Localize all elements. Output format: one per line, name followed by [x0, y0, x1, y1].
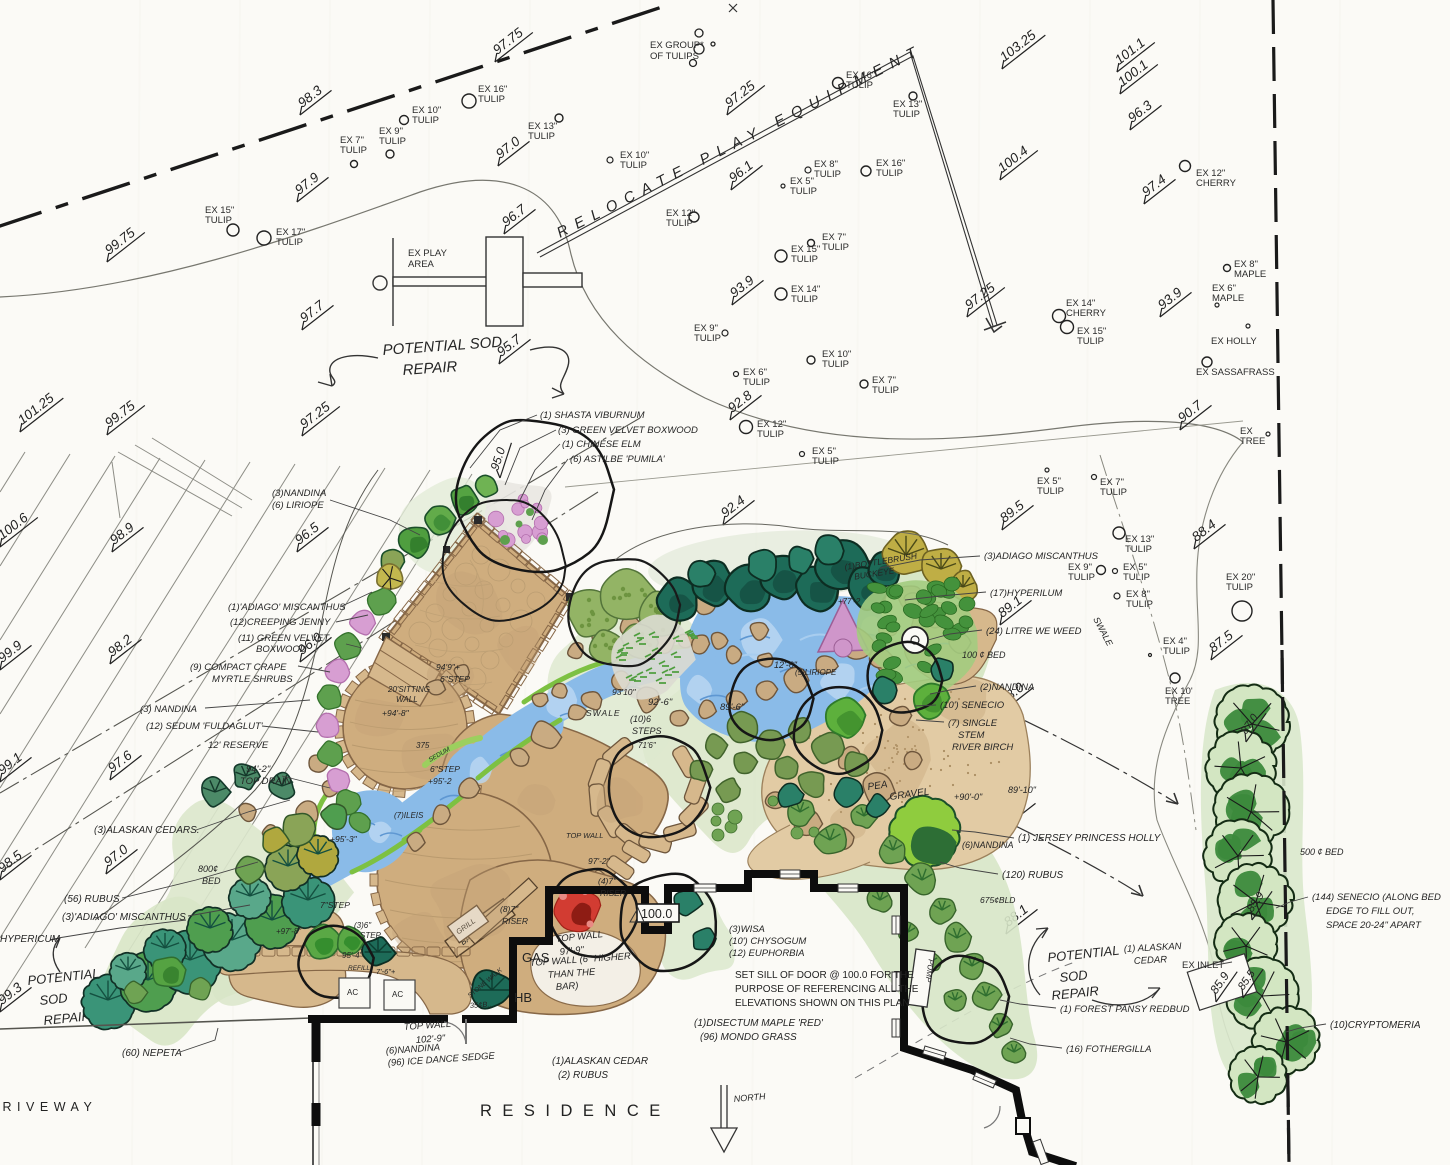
svg-text:(10)CRYPTOMERIA: (10)CRYPTOMERIA — [1330, 1020, 1421, 1031]
svg-text:TULIP: TULIP — [694, 333, 721, 344]
svg-text:94'-2": 94'-2" — [246, 764, 271, 775]
svg-text:TULIP: TULIP — [1163, 646, 1190, 657]
svg-text:DRIVEWAY: DRIVEWAY — [0, 1100, 97, 1114]
svg-text:(3) NANDINA: (3) NANDINA — [140, 704, 197, 715]
svg-text:89'-6": 89'-6" — [720, 702, 745, 713]
svg-text:OF TULIPS: OF TULIPS — [650, 51, 699, 62]
svg-text:SWALE: SWALE — [586, 708, 621, 718]
svg-text:(16) FOTHERGILLA: (16) FOTHERGILLA — [1066, 1044, 1152, 1055]
svg-text:HYPERICUM: HYPERICUM — [0, 934, 61, 945]
svg-text:(60) NEPETA: (60) NEPETA — [122, 1048, 182, 1059]
svg-text:7'-6"+: 7'-6"+ — [376, 967, 396, 976]
svg-text:BAR): BAR) — [555, 980, 578, 993]
svg-text:20'SITTING: 20'SITTING — [387, 685, 430, 694]
svg-text:(1)'ADIAGO' MISCANTHUS: (1)'ADIAGO' MISCANTHUS — [228, 602, 346, 613]
svg-text:(56) RUBUS: (56) RUBUS — [64, 894, 120, 905]
svg-text:TULIP: TULIP — [1077, 336, 1104, 347]
svg-text:EX HOLLY: EX HOLLY — [1211, 336, 1257, 347]
svg-text:BOXWOOD: BOXWOOD — [256, 644, 307, 655]
svg-text:(6) ASTILBE 'PUMILA': (6) ASTILBE 'PUMILA' — [570, 454, 666, 465]
svg-text:TULIP: TULIP — [814, 169, 841, 180]
svg-text:TOP WALL: TOP WALL — [566, 831, 603, 840]
svg-text:EX GROUP*: EX GROUP* — [650, 40, 704, 51]
svg-text:SET SILL OF DOOR @ 100.0 FOR T: SET SILL OF DOOR @ 100.0 FOR THE — [735, 970, 914, 981]
svg-text:(1)ALASKAN CEDAR: (1)ALASKAN CEDAR — [552, 1056, 648, 1067]
svg-text:6"STEP: 6"STEP — [440, 674, 470, 684]
svg-text:800¢: 800¢ — [198, 864, 218, 874]
svg-text:SOD: SOD — [39, 990, 69, 1008]
svg-text:7"STEP: 7"STEP — [320, 900, 350, 910]
svg-text:(3)WISA: (3)WISA — [729, 924, 765, 935]
svg-text:AC: AC — [347, 988, 358, 997]
svg-text:(2) RUBUS: (2) RUBUS — [558, 1070, 608, 1081]
svg-text:TOP DRAIN: TOP DRAIN — [240, 776, 291, 787]
svg-text:MAPLE: MAPLE — [1234, 269, 1266, 280]
svg-text:STEP: STEP — [360, 931, 382, 940]
svg-text:TULIP: TULIP — [822, 242, 849, 253]
svg-text:ELEVATIONS SHOWN ON THIS PLAN: ELEVATIONS SHOWN ON THIS PLAN — [735, 998, 909, 1009]
svg-text:6"STEP: 6"STEP — [430, 764, 460, 774]
svg-text:(8)7": (8)7" — [500, 904, 519, 914]
svg-text:(1) SHASTA VIBURNUM: (1) SHASTA VIBURNUM — [540, 410, 645, 421]
svg-text:TULIP: TULIP — [822, 359, 849, 370]
svg-text:TREE: TREE — [1240, 436, 1265, 447]
svg-text:REFILL: REFILL — [348, 965, 370, 972]
svg-text:100.0: 100.0 — [641, 907, 672, 921]
svg-text:(144) SENECIO (ALONG BED: (144) SENECIO (ALONG BED — [1312, 892, 1441, 903]
svg-text:STEPS: STEPS — [632, 726, 662, 736]
svg-text:TULIP: TULIP — [276, 237, 303, 248]
svg-text:TULIP: TULIP — [791, 294, 818, 305]
svg-text:(3)'ADIAGO' MISCANTHUS: (3)'ADIAGO' MISCANTHUS — [62, 912, 186, 923]
svg-text:(5)LIRIOPE: (5)LIRIOPE — [795, 668, 837, 677]
svg-text:RESIDENCE: RESIDENCE — [480, 1102, 671, 1120]
svg-text:TULIP: TULIP — [876, 168, 903, 179]
svg-text:EX PLAY: EX PLAY — [408, 248, 448, 259]
svg-text:(120) RUBUS: (120) RUBUS — [1002, 870, 1063, 881]
svg-text:12' RESERVE: 12' RESERVE — [208, 740, 269, 751]
svg-text:TULIP: TULIP — [340, 145, 367, 156]
svg-text:(3)NANDINA: (3)NANDINA — [272, 488, 326, 499]
svg-text:SOD: SOD — [1059, 967, 1089, 985]
svg-text:35¢B..: 35¢B.. — [470, 1000, 492, 1010]
svg-text:(6)NANDINA: (6)NANDINA — [962, 840, 1014, 850]
svg-text:CHERRY: CHERRY — [1196, 178, 1237, 189]
svg-text:89'-10": 89'-10" — [1008, 785, 1037, 795]
svg-text:TULIP: TULIP — [620, 160, 647, 171]
svg-text:(1) FOREST PANSY REDBUD: (1) FOREST PANSY REDBUD — [1060, 1004, 1190, 1015]
svg-text:CEDAR: CEDAR — [1134, 954, 1168, 967]
svg-text:500 ¢ BED: 500 ¢ BED — [1300, 847, 1344, 857]
svg-text:TULIP: TULIP — [872, 385, 899, 396]
svg-text:+95'-2: +95'-2 — [428, 776, 452, 786]
svg-text:(1)DISECTUM MAPLE 'RED': (1)DISECTUM MAPLE 'RED' — [694, 1018, 824, 1029]
svg-text:EDGE TO FILL OUT,: EDGE TO FILL OUT, — [1326, 906, 1415, 917]
svg-text:92'-6": 92'-6" — [648, 697, 673, 708]
svg-text:TULIP: TULIP — [757, 429, 784, 440]
svg-text:94'9"+: 94'9"+ — [436, 662, 460, 672]
svg-text:TULIP: TULIP — [205, 215, 232, 226]
svg-text:(17)HYPERILUM: (17)HYPERILUM — [990, 588, 1062, 599]
svg-text:(10') CHYSOGUM: (10') CHYSOGUM — [729, 936, 806, 947]
svg-text:RISER: RISER — [600, 888, 626, 898]
svg-text:EX SASSAFRASS: EX SASSAFRASS — [1196, 367, 1275, 378]
svg-text:(12) SEDUM 'FULDAGLUT': (12) SEDUM 'FULDAGLUT' — [146, 721, 264, 732]
svg-text:RISER: RISER — [502, 916, 528, 926]
svg-text:375: 375 — [416, 741, 430, 750]
svg-text:CHERRY: CHERRY — [1066, 308, 1107, 319]
svg-text:(96) MONDO GRASS: (96) MONDO GRASS — [700, 1032, 797, 1043]
svg-text:TREE: TREE — [1165, 696, 1190, 707]
svg-text:TULIP: TULIP — [1126, 599, 1153, 610]
svg-text:71'6": 71'6" — [638, 741, 657, 750]
svg-text:MYRTLE SHRUBS: MYRTLE SHRUBS — [212, 674, 293, 685]
svg-text:MAPLE: MAPLE — [1212, 293, 1244, 304]
svg-text:SPACE 20-24" APART: SPACE 20-24" APART — [1326, 920, 1422, 931]
svg-text:(3)ADIAGO MISCANTHUS: (3)ADIAGO MISCANTHUS — [984, 551, 1099, 562]
svg-text:TULIP: TULIP — [790, 186, 817, 197]
svg-text:TULIP: TULIP — [528, 131, 555, 142]
svg-text:TULIP: TULIP — [1037, 486, 1064, 497]
svg-text:(11) GREEN VELVET: (11) GREEN VELVET — [238, 633, 330, 644]
svg-text:+77'-?: +77'-? — [838, 597, 861, 606]
svg-text:(12)CREEPING JENNY: (12)CREEPING JENNY — [230, 617, 331, 628]
svg-text:TULIP: TULIP — [893, 109, 920, 120]
svg-text:(3)6": (3)6" — [354, 921, 372, 930]
svg-text:(10)6: (10)6 — [630, 714, 651, 724]
svg-text:(3) GREEN VELVET BOXWOOD: (3) GREEN VELVET BOXWOOD — [558, 425, 698, 436]
svg-text:TULIP: TULIP — [1123, 572, 1150, 583]
svg-text:TULIP: TULIP — [846, 80, 873, 91]
svg-text:BED: BED — [202, 876, 221, 886]
svg-text:(4)7": (4)7" — [598, 876, 617, 886]
svg-text:AC: AC — [392, 990, 403, 999]
svg-text:TULIP: TULIP — [412, 115, 439, 126]
svg-text:(7)ILEIS: (7)ILEIS — [394, 811, 424, 820]
svg-text:PURPOSE OF REFERENCING ALL THE: PURPOSE OF REFERENCING ALL THE — [735, 984, 919, 995]
svg-text:TULIP: TULIP — [1068, 572, 1095, 583]
svg-text:AREA: AREA — [408, 259, 435, 270]
svg-text:+97'-8": +97'-8" — [276, 927, 302, 936]
svg-text:(2)NANDINA: (2)NANDINA — [980, 682, 1034, 693]
svg-text:TULIP: TULIP — [743, 377, 770, 388]
svg-text:TULIP: TULIP — [791, 254, 818, 265]
svg-text:(9) COMPACT CRAPE: (9) COMPACT CRAPE — [190, 662, 287, 673]
svg-text:(3)ALASKAN CEDARS.: (3)ALASKAN CEDARS. — [94, 825, 200, 836]
svg-text:(1) CHINESE ELM: (1) CHINESE ELM — [562, 439, 641, 450]
svg-text:675¢BLD: 675¢BLD — [980, 895, 1015, 905]
svg-text:+95'-3": +95'-3" — [330, 834, 358, 844]
svg-text:RIVER BIRCH: RIVER BIRCH — [952, 742, 1013, 753]
svg-text:+94'-8": +94'-8" — [382, 708, 410, 718]
svg-text:HB: HB — [514, 990, 532, 1005]
svg-text:93'10": 93'10" — [612, 687, 637, 697]
svg-text:EX INLET: EX INLET — [1182, 960, 1224, 971]
svg-text:STEM: STEM — [958, 730, 984, 741]
svg-text:+90'-0": +90'-0" — [954, 792, 983, 802]
svg-text:(10') SENECIO: (10') SENECIO — [940, 700, 1005, 711]
svg-text:WALL: WALL — [396, 695, 418, 704]
svg-text:100 ¢ BED: 100 ¢ BED — [962, 650, 1006, 660]
svg-text:TULIP: TULIP — [1100, 487, 1127, 498]
svg-text:(24) LITRE WE WEED: (24) LITRE WE WEED — [986, 626, 1082, 637]
svg-text:TULIP: TULIP — [1226, 582, 1253, 593]
svg-text:TULIP: TULIP — [666, 218, 693, 229]
svg-text:TULIP: TULIP — [812, 456, 839, 467]
svg-text:97'-2": 97'-2" — [588, 856, 611, 866]
svg-text:(7) SINGLE: (7) SINGLE — [948, 718, 998, 729]
svg-text:(12) EUPHORBIA: (12) EUPHORBIA — [729, 948, 805, 959]
svg-text:95'-4": 95'-4" — [342, 951, 364, 960]
svg-text:TULIP: TULIP — [379, 136, 406, 147]
svg-text:TULIP: TULIP — [478, 94, 505, 105]
svg-text:(6) LIRIOPE: (6) LIRIOPE — [272, 500, 324, 511]
svg-text:(1) JERSEY PRINCESS HOLLY: (1) JERSEY PRINCESS HOLLY — [1018, 833, 1162, 844]
svg-text:TULIP: TULIP — [1125, 544, 1152, 555]
